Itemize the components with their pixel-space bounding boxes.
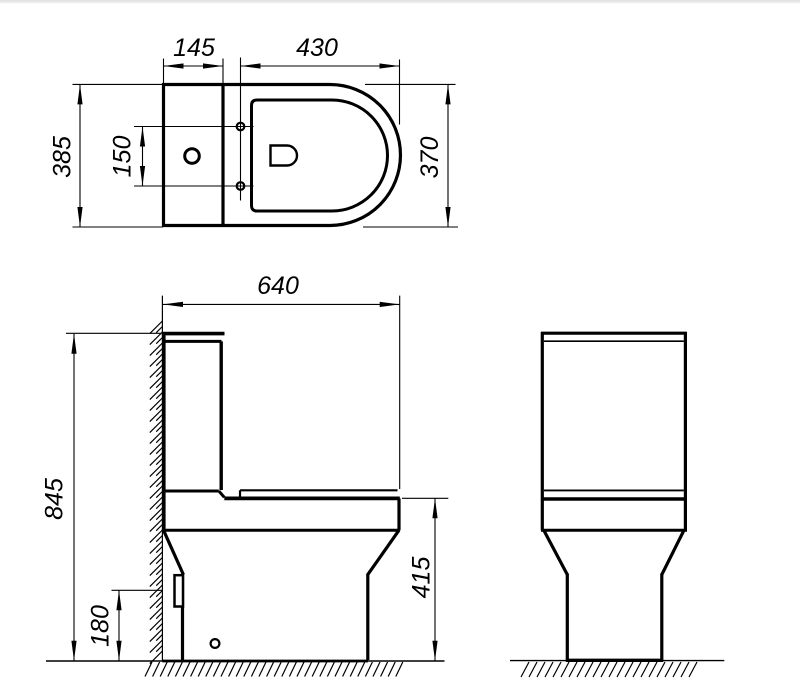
svg-text:145: 145 (173, 34, 215, 62)
svg-text:180: 180 (87, 605, 115, 647)
svg-text:845: 845 (41, 478, 69, 520)
svg-text:370: 370 (416, 137, 444, 179)
svg-text:430: 430 (296, 34, 338, 62)
svg-text:385: 385 (49, 136, 77, 178)
svg-text:150: 150 (109, 136, 137, 178)
svg-text:640: 640 (257, 272, 299, 300)
svg-text:415: 415 (408, 557, 436, 599)
